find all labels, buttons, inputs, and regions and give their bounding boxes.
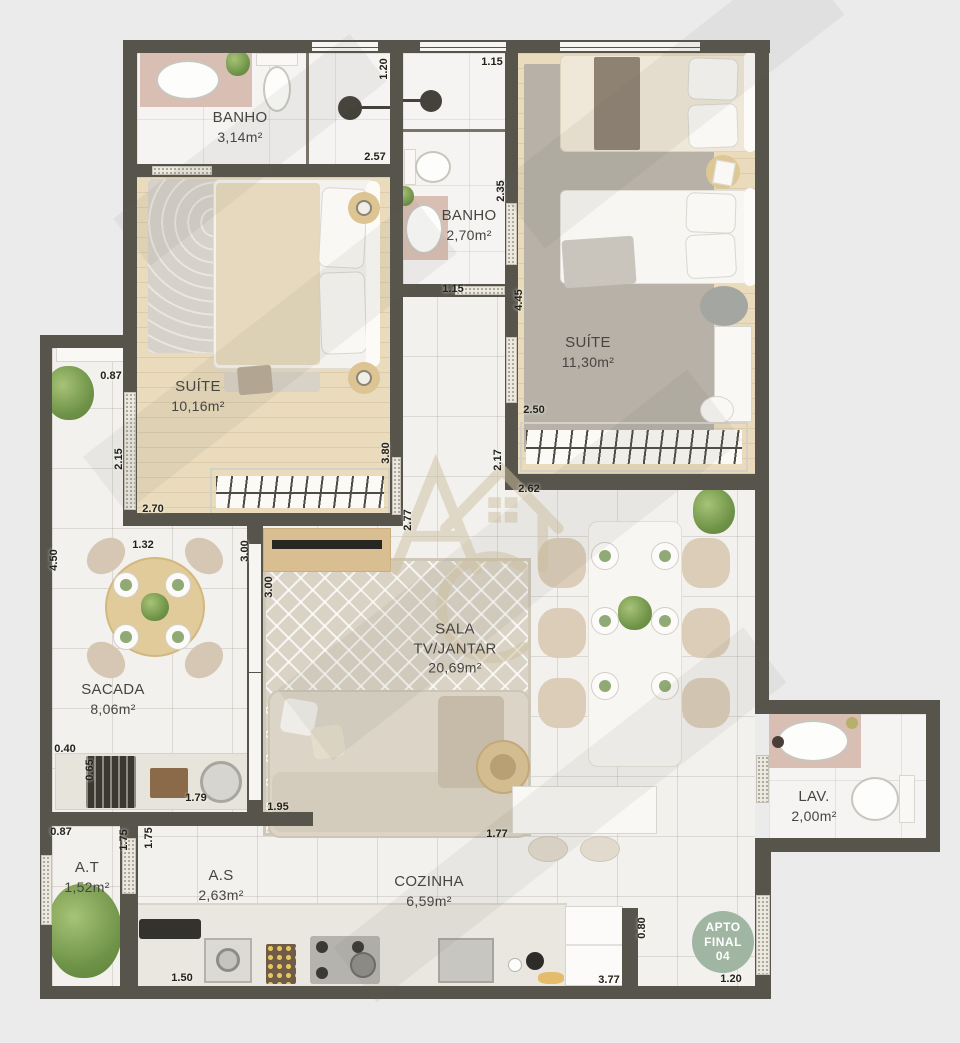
- balcony-table-plant: [141, 593, 169, 621]
- dimension-label: 2.57: [364, 151, 385, 163]
- dining-plate: [591, 672, 619, 700]
- unit-badge: APTO FINAL 04: [692, 911, 754, 973]
- balcony-sliding-door: [247, 544, 263, 800]
- balcony-plant: [46, 366, 94, 420]
- wall: [755, 40, 769, 714]
- dimension-label: 1.20: [378, 58, 390, 79]
- suite1-bench-blanket: [237, 365, 273, 396]
- bath2-shower-arm: [403, 99, 423, 102]
- wall: [40, 335, 137, 348]
- suite2-desk-chair: [700, 286, 748, 326]
- room-label-suite-1: SUÍTE10,16m²: [171, 377, 224, 415]
- dimension-label: 1.15: [442, 283, 463, 295]
- dimension-label: 3.77: [598, 974, 619, 986]
- dimension-label: 0.87: [50, 826, 71, 838]
- island-stool: [580, 836, 620, 862]
- room-label-lav: LAV.2,00m²: [791, 787, 836, 825]
- lav-vase: [772, 736, 784, 748]
- unit-badge-line2: FINAL: [692, 935, 754, 949]
- suite2-bed1-throw: [594, 57, 640, 150]
- dimension-label: 2.77: [402, 509, 414, 530]
- dimension-label: 1.75: [118, 829, 130, 850]
- dimension-label: 1.79: [185, 792, 206, 804]
- window-bath2-suite2: [506, 203, 517, 265]
- corner-cooktop: [139, 919, 201, 939]
- dimension-label: 1.15: [481, 56, 502, 68]
- dining-chair: [682, 538, 730, 588]
- bath1-toilet: [263, 66, 291, 112]
- dimension-label: 2.15: [113, 448, 125, 469]
- dimension-label: 1.50: [171, 972, 192, 984]
- dining-plate: [591, 542, 619, 570]
- suite1-pillow: [319, 271, 368, 355]
- door-lavatory: [756, 755, 769, 803]
- bread: [538, 972, 564, 984]
- suite2-stool: [700, 396, 734, 424]
- moka-pot: [526, 952, 544, 970]
- cutting-board: [150, 768, 188, 798]
- wall: [137, 513, 403, 526]
- dimension-label: 1.32: [132, 539, 153, 551]
- room-label-as: A.S2,63m²: [198, 866, 243, 904]
- window: [560, 40, 700, 53]
- dimension-label: 0.80: [636, 917, 648, 938]
- bath2-shower-head-icon: [420, 90, 442, 112]
- floor-plan: A C APTO FINAL 04 1.201.152.572.351.154.…: [0, 0, 960, 1043]
- bath2-shower-glass: [403, 129, 505, 132]
- room-label-cozinha: COZINHA6,59m²: [394, 872, 464, 910]
- dimension-label: 3.00: [239, 540, 251, 561]
- dimension-label: 2.50: [523, 404, 544, 416]
- dimension-label: 3.80: [380, 442, 392, 463]
- dimension-label: 0.87: [100, 370, 121, 382]
- suite1-wardrobe: [210, 468, 390, 516]
- entry-door: [756, 895, 770, 975]
- suite1-lamp-icon: [356, 200, 372, 216]
- suite2-bed1-pillow: [687, 57, 738, 101]
- room-label-at: A.T1,52m²: [64, 858, 109, 896]
- window-suite1-balcony: [124, 392, 136, 510]
- coffee-table-tray: [490, 754, 516, 780]
- stove-burner: [316, 967, 328, 979]
- bath1-sink: [156, 60, 220, 100]
- bath1-shower-arm: [350, 106, 390, 109]
- dimension-label: 2.35: [495, 180, 507, 201]
- dimension-label: 2.62: [518, 483, 539, 495]
- balcony-plate: [113, 572, 139, 598]
- room-label-sala: SALATV/JANTAR20,69m²: [413, 619, 496, 676]
- wall: [40, 812, 313, 826]
- sofa-pillow: [310, 724, 346, 760]
- dimension-label: 2.17: [492, 449, 504, 470]
- room-label-sacada: SACADA8,06m²: [81, 680, 145, 718]
- suite2-bed2-pillow: [685, 192, 736, 234]
- lav-toilet-tank: [899, 775, 915, 823]
- wall: [390, 40, 403, 177]
- island-stool: [528, 836, 568, 862]
- washing-machine-door: [216, 948, 240, 972]
- dining-plate: [651, 672, 679, 700]
- dining-plate: [651, 607, 679, 635]
- door-suite2: [506, 337, 517, 403]
- dimension-label: 2.70: [142, 503, 163, 515]
- bath1-shower-glass: [306, 53, 309, 164]
- dining-plate: [651, 542, 679, 570]
- dining-plate: [591, 607, 619, 635]
- bath1-plant: [226, 50, 250, 76]
- bath1-toilet-tank: [256, 53, 298, 66]
- unit-badge-line3: 04: [692, 949, 754, 963]
- bath2-sink: [405, 204, 443, 254]
- wall: [755, 838, 940, 852]
- coffee-cup: [508, 958, 522, 972]
- window-utility: [41, 855, 52, 925]
- door-bath1: [152, 166, 212, 175]
- unit-badge-line1: APTO: [692, 920, 754, 934]
- dimension-label: 0.40: [54, 743, 75, 755]
- dimension-label: 1.95: [267, 801, 288, 813]
- dining-chair: [538, 678, 586, 728]
- dimension-label: 3.00: [263, 576, 275, 597]
- dimension-label: 0.65: [84, 759, 96, 780]
- balcony-plate: [113, 624, 139, 650]
- bath2-toilet: [415, 151, 451, 183]
- room-label-banho-2: BANHO2,70m²: [442, 206, 497, 244]
- kitchen-island: [512, 786, 657, 834]
- balcony-plate: [165, 572, 191, 598]
- living-corner-plant: [693, 488, 735, 534]
- balcony-plate: [165, 624, 191, 650]
- pan: [350, 952, 376, 978]
- dimension-label: 4.45: [513, 289, 525, 310]
- lav-toilet: [851, 777, 899, 821]
- window: [420, 40, 506, 53]
- dimension-label: 1.77: [486, 828, 507, 840]
- suite2-book: [712, 159, 736, 186]
- suite2-bed2-pillow: [685, 233, 737, 280]
- fridge-divider: [566, 944, 622, 946]
- room-label-banho-1: BANHO3,14m²: [213, 108, 268, 146]
- window: [312, 40, 378, 53]
- suite1-lamp-icon: [356, 370, 372, 386]
- suite2-bed1-pillow: [687, 103, 739, 149]
- tv-console: [263, 528, 391, 572]
- wall: [755, 700, 940, 714]
- dimension-label: 4.50: [48, 549, 60, 570]
- dining-chair: [682, 678, 730, 728]
- kitchen-sink: [438, 938, 494, 983]
- fruit-tray: [266, 944, 296, 984]
- dimension-label: 1.20: [720, 973, 741, 985]
- wall: [40, 986, 771, 999]
- room-label-suite-2: SUÍTE11,30m²: [562, 333, 614, 371]
- tv: [272, 540, 382, 549]
- dining-chair: [682, 608, 730, 658]
- dining-table-plant: [618, 596, 652, 630]
- suite1-duvet: [216, 183, 320, 365]
- dimension-label: 1.75: [143, 827, 155, 848]
- stove-burner: [316, 941, 328, 953]
- lav-sink: [777, 720, 849, 762]
- utility-plant: [48, 884, 122, 978]
- suite2-bed2-throw: [561, 236, 636, 289]
- lav-soap: [846, 717, 858, 729]
- wall: [926, 700, 940, 852]
